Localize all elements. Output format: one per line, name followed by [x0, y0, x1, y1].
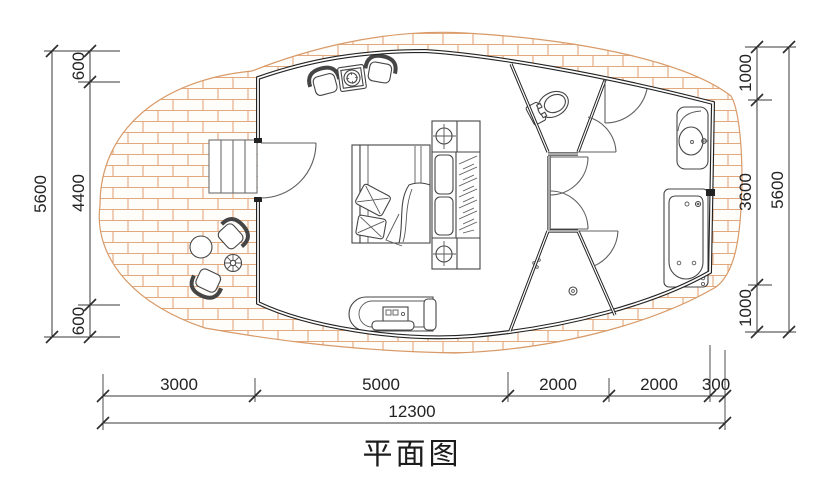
wardrobe-door [435, 197, 453, 235]
plan-title: 平面图 [363, 438, 462, 471]
dim-label: 12300 [388, 402, 435, 421]
entry-steps [209, 140, 257, 193]
wardrobe [432, 121, 480, 269]
dim-label: 300 [702, 375, 730, 394]
dim-label: 5000 [362, 375, 400, 394]
double-bed [352, 145, 430, 246]
bed-pillow [355, 215, 386, 240]
dim-label: 600 [69, 307, 88, 335]
dim-label: 4400 [69, 174, 88, 212]
dim-label: 3000 [160, 375, 198, 394]
outdoor-table [190, 236, 212, 258]
dim-label: 600 [69, 52, 88, 80]
right-dimension: 1000 3600 1000 5600 [736, 41, 796, 338]
wall-cap [706, 189, 715, 196]
bottom-dimension: 3000 5000 2000 2000 300 12300 [97, 345, 731, 430]
dim-label: 1000 [736, 289, 755, 327]
floor-plan: 600 4400 600 5600 1000 3600 1000 5600 30… [0, 0, 837, 496]
floor-plan-canvas: 600 4400 600 5600 1000 3600 1000 5600 30… [0, 0, 837, 496]
dim-label: 2000 [539, 375, 577, 394]
daybed [349, 297, 436, 331]
washbasin [677, 107, 708, 169]
door-jamb [254, 138, 262, 143]
coffee-table [337, 64, 366, 91]
dim-label: 1000 [736, 54, 755, 92]
dim-label: 3600 [736, 173, 755, 211]
wardrobe-door [435, 155, 453, 194]
dim-label: 5600 [31, 175, 50, 213]
door-jamb [254, 197, 262, 202]
dim-label: 2000 [640, 375, 678, 394]
potted-plant [225, 255, 242, 272]
dim-label: 5600 [768, 171, 787, 209]
bathtub [664, 189, 708, 287]
